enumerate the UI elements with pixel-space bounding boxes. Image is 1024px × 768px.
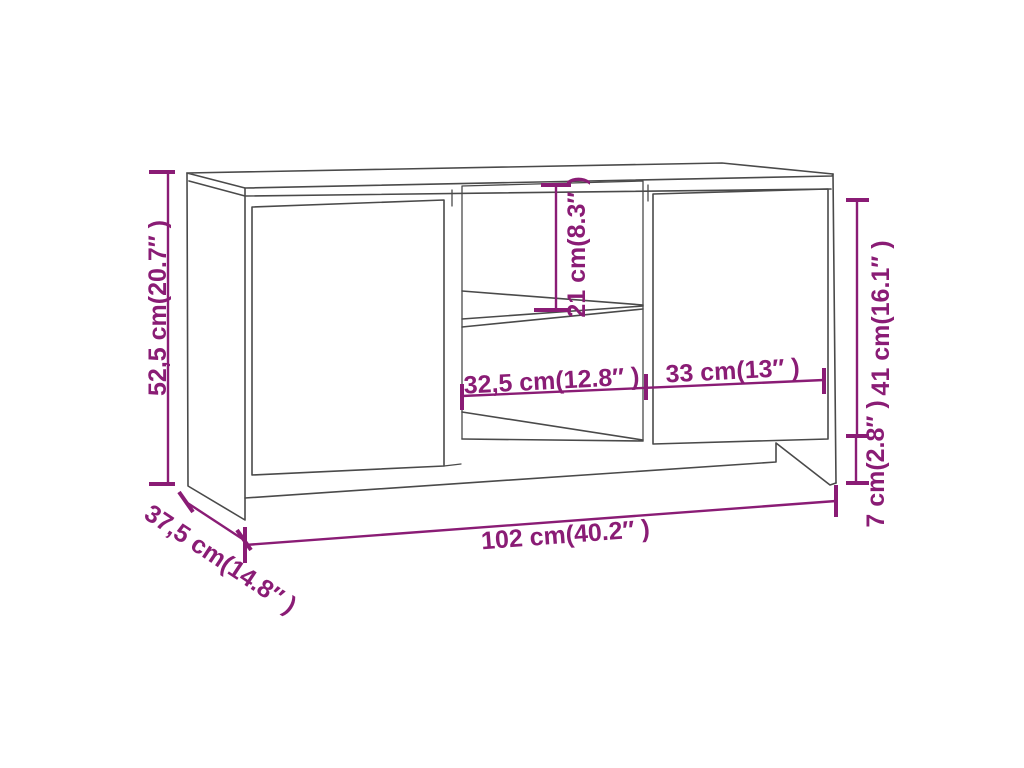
cabinet-drawing	[187, 163, 836, 520]
dim-plinth-height: 7 cm(2.8″ )	[846, 400, 890, 527]
cabinet-right-edge	[833, 174, 836, 483]
cabinet-left-side-panel	[187, 173, 245, 520]
dim-depth-label: 37,5 cm(14.8″ )	[139, 499, 301, 619]
dim-height-label: 52,5 cm(20.7″ )	[144, 220, 172, 396]
right-door	[653, 189, 828, 444]
dimension-diagram-page: 52,5 cm(20.7″ ) 37,5 cm(14.8″ ) 102 cm(4…	[0, 0, 1024, 768]
cabinet-dimension-diagram: 52,5 cm(20.7″ ) 37,5 cm(14.8″ ) 102 cm(4…	[0, 0, 1024, 768]
left-door	[252, 200, 444, 475]
dim-door-width-label: 33 cm(13″ )	[665, 354, 801, 389]
dim-height: 52,5 cm(20.7″ )	[144, 172, 175, 484]
dim-shelf-height-label: 21 cm(8.3″ )	[563, 176, 591, 317]
dim-width: 102 cm(40.2″ )	[245, 485, 836, 563]
middle-compartment-floor	[462, 412, 643, 441]
dim-shelf-width-label: 32,5 cm(12.8″ )	[463, 362, 640, 399]
dim-depth: 37,5 cm(14.8″ )	[139, 492, 301, 620]
left-door-bottom-gap	[444, 464, 461, 466]
dim-width-label: 102 cm(40.2″ )	[480, 515, 651, 556]
dim-shelf-height: 21 cm(8.3″ )	[534, 176, 591, 317]
dim-plinth-height-label: 7 cm(2.8″ )	[862, 400, 890, 527]
dim-door-height-label: 41 cm(16.1″ )	[867, 240, 895, 395]
